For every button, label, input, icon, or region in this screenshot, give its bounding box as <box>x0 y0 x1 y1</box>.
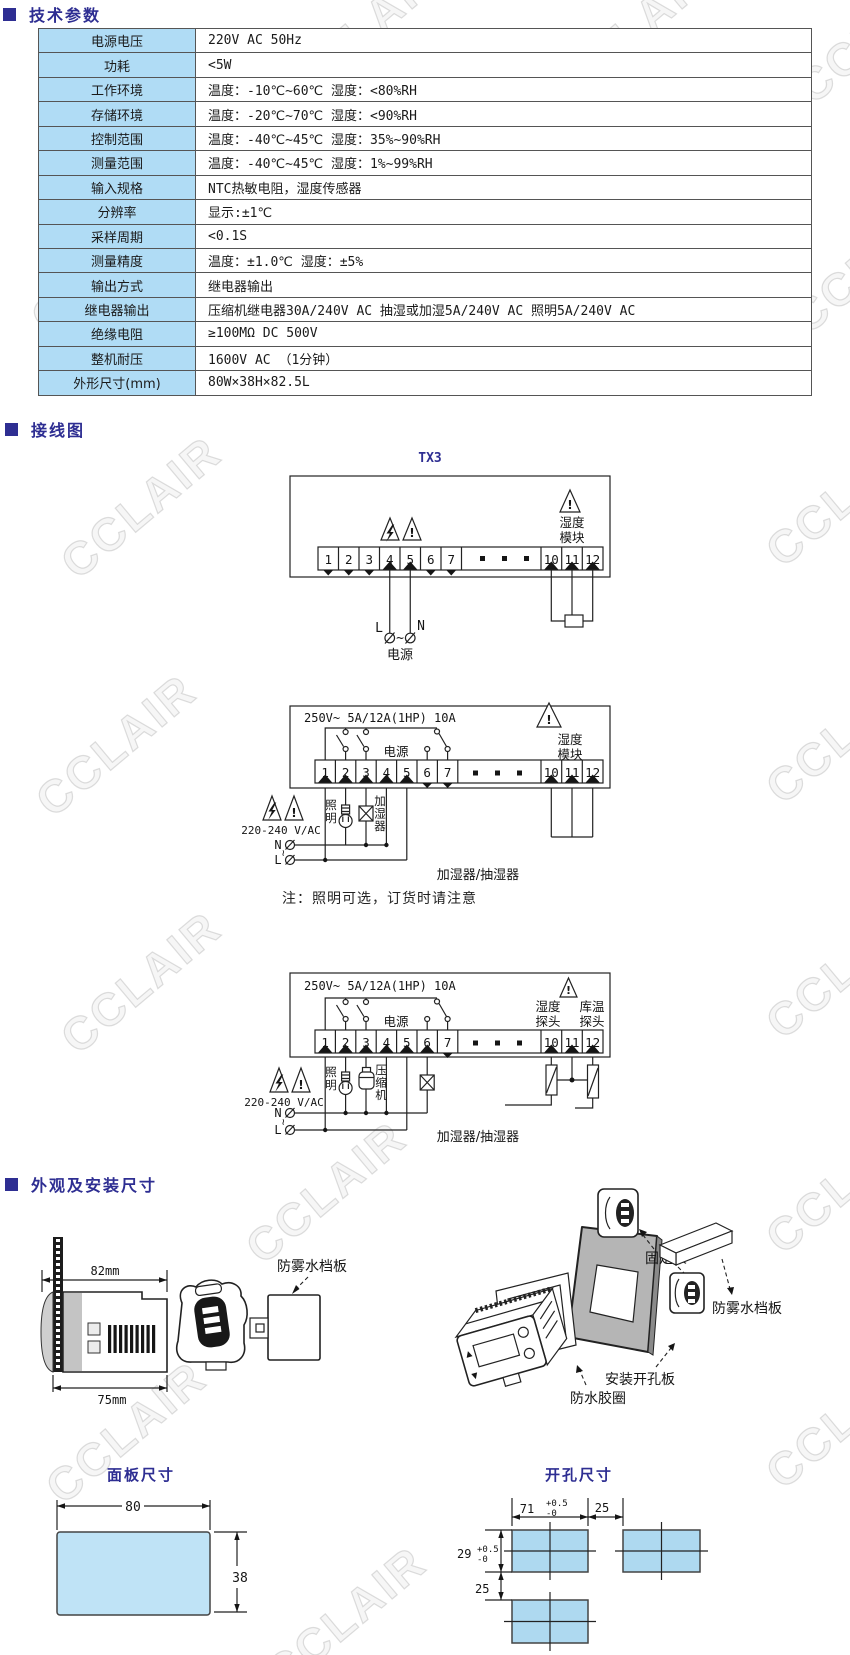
spec-label: 整机耐压 <box>39 347 196 370</box>
order-note: 注：照明可选，订货时请注意 <box>282 888 477 908</box>
humidifier-label: 器 <box>374 819 386 833</box>
compressor-label: 机 <box>375 1088 387 1102</box>
warning-icon: ! <box>403 518 421 540</box>
relay-rating: 250V~ 5A/12A(1HP) 10A <box>304 979 456 993</box>
humidity-module-box <box>565 615 583 627</box>
vent-grille <box>108 1325 155 1353</box>
dimension-75mm: 75mm <box>53 1375 167 1407</box>
table-row: 功耗<5W <box>39 53 811 77</box>
callout-arrowhead <box>576 1365 583 1373</box>
terminal-number: 6 <box>423 765 431 780</box>
spec-label: 绝缘电阻 <box>39 322 196 345</box>
fixing-bracket-side <box>670 1273 704 1313</box>
tolerance-minus: -0 <box>477 1555 488 1565</box>
terminal-number: 6 <box>427 552 435 567</box>
spec-value: 1600V AC （1分钟） <box>196 347 811 370</box>
table-row: 继电器输出压缩机继电器30A/240V AC 抽湿或加湿5A/240V AC 照… <box>39 298 811 322</box>
spec-table: 电源电压220V AC 50Hz 功耗<5W 工作环境温度：-10℃~60℃ 湿… <box>38 28 812 396</box>
table-row: 存储环境温度：-20℃~70℃ 湿度：<90%RH <box>39 102 811 126</box>
ac-tilde: ~ <box>396 631 404 646</box>
watermark: CCLAIR <box>755 885 850 1050</box>
power-label: 电源 <box>383 744 409 759</box>
spec-value: 继电器输出 <box>196 273 811 296</box>
probe-label: 探头 <box>579 1014 604 1029</box>
spec-value: 显示:±1℃ <box>196 200 811 223</box>
cutout-size-title: 开孔尺寸 <box>545 1464 613 1485</box>
table-row: 整机耐压1600V AC （1分钟） <box>39 347 811 371</box>
watermark: CCLAIR <box>755 413 850 578</box>
section-header-tech: 技术参数 <box>3 2 101 26</box>
spec-label: 电源电压 <box>39 29 196 52</box>
spec-label: 测量范围 <box>39 151 196 174</box>
terminal-number: 7 <box>444 1035 452 1050</box>
warning-mark: ! <box>546 713 551 727</box>
table-row: 采样周期<0.1S <box>39 225 811 249</box>
controller-side-view <box>41 1237 167 1372</box>
spec-label: 功耗 <box>39 53 196 76</box>
section-bullet <box>5 423 18 436</box>
humidity-probe-icon <box>546 1065 557 1095</box>
dim-label: 82mm <box>91 1264 120 1278</box>
section-bullet <box>5 1178 18 1191</box>
spec-label: 测量精度 <box>39 249 196 272</box>
cutout-panel <box>568 1227 662 1355</box>
spec-label: 分辨率 <box>39 200 196 223</box>
watermark: CCLAIR <box>755 650 850 815</box>
spec-value: <5W <box>196 53 811 76</box>
table-row: 测量范围温度：-40℃~45℃ 湿度：1%~99%RH <box>39 151 811 175</box>
section-bullet <box>3 8 16 21</box>
spec-label: 外形尺寸(mm) <box>39 371 196 394</box>
terminal-strip: 1 2 3 4 5 6 7 10 11 12 <box>318 547 603 576</box>
spec-value: 80W×38H×82.5L <box>196 371 811 394</box>
dimension-width: 80 <box>57 1500 210 1530</box>
module-label: 模块 <box>559 530 585 545</box>
lighting-label: 照 <box>325 1065 337 1079</box>
line-label: L <box>375 621 383 636</box>
power-label: 电源 <box>387 648 413 663</box>
lighting-label: 明 <box>325 1078 337 1092</box>
spec-label: 采样周期 <box>39 225 196 248</box>
compressor-icon <box>359 1068 374 1090</box>
terminal-strip: 1 2 3 4 5 6 7 10 11 12 <box>315 1030 603 1058</box>
table-row: 分辨率显示:±1℃ <box>39 200 811 224</box>
wiring-diagram-probes: 250V~ 5A/12A(1HP) 10A 电源 ! 湿度 探头 库温 探头 1… <box>230 965 650 1160</box>
spec-value: 温度：±1.0℃ 湿度：±5% <box>196 249 811 272</box>
spec-value: NTC热敏电阻，湿度传感器 <box>196 176 811 199</box>
lamp-icon <box>339 1072 352 1095</box>
terminal-number: 1 <box>324 552 332 567</box>
callout-arrow <box>722 1259 730 1289</box>
terminal-number: 7 <box>444 765 452 780</box>
dim-label: 38 <box>232 1571 248 1586</box>
warning-icon: ! <box>560 490 580 512</box>
warning-mark: ! <box>567 498 572 512</box>
spec-value: ≥100MΩ DC 500V <box>196 322 811 345</box>
terminal-number: 3 <box>365 552 373 567</box>
dim-label: 75mm <box>98 1393 127 1407</box>
warning-icon: ! <box>285 796 303 820</box>
dim-label: 25 <box>475 1582 489 1596</box>
dimension-cutout-height: 29 +0.5 -0 25 <box>457 1530 512 1600</box>
power-label: 电源 <box>383 1014 409 1029</box>
spec-value: 温度：-20℃~70℃ 湿度：<90%RH <box>196 102 811 125</box>
spec-value: 温度：-40℃~45℃ 湿度：1%~99%RH <box>196 151 811 174</box>
mains-label: 220-240 V/AC <box>244 1096 323 1109</box>
table-row: 输入规格NTC热敏电阻，湿度传感器 <box>39 176 811 200</box>
install-drawings: 82mm 75mm <box>20 1185 840 1420</box>
lighting-label: 照 <box>325 798 337 812</box>
panel-size-drawing: 80 38 <box>40 1490 260 1630</box>
hazard-voltage-icon <box>270 1068 288 1092</box>
mains-terminals: N L ~ <box>274 1106 294 1137</box>
warning-mark: ! <box>566 984 571 997</box>
baffle-strip-3d <box>660 1223 732 1265</box>
table-row: 测量精度温度：±1.0℃ 湿度：±5% <box>39 249 811 273</box>
section-title: 技术参数 <box>29 2 101 26</box>
probe-label: 湿度 <box>535 999 561 1014</box>
callout-arrowhead <box>292 1285 300 1294</box>
temp-probe-icon <box>588 1065 599 1098</box>
cutout-rect <box>615 1522 708 1580</box>
cutout-rect <box>504 1522 596 1580</box>
panel-face <box>57 1532 210 1615</box>
warning-mark: ! <box>291 806 296 820</box>
warning-mark: ! <box>298 1078 303 1092</box>
hazard-voltage-icon <box>381 518 399 542</box>
spec-value: <0.1S <box>196 225 811 248</box>
table-row: 控制范围温度：-40℃~45℃ 湿度：35%~90%RH <box>39 127 811 151</box>
panel-size-title: 面板尺寸 <box>107 1464 175 1485</box>
table-row: 电源电压220V AC 50Hz <box>39 29 811 53</box>
tolerance-plus: +0.5 <box>477 1545 499 1555</box>
table-row: 外形尺寸(mm)80W×38H×82.5L <box>39 371 811 394</box>
table-row: 输出方式继电器输出 <box>39 273 811 297</box>
watermark: CCLAIR <box>50 425 232 590</box>
baffle-label: 防雾水档板 <box>277 1259 347 1275</box>
ac-tilde: ~ <box>277 850 290 857</box>
warning-icon: ! <box>292 1068 310 1092</box>
watermark: CCLAIR <box>255 1535 437 1655</box>
hazard-voltage-icon <box>263 796 281 820</box>
dim-label: 80 <box>125 1500 141 1515</box>
dim-label: 29 <box>457 1547 471 1561</box>
warning-icon: ! <box>560 978 577 997</box>
gasket-label: 防水胶圈 <box>570 1390 626 1407</box>
cutout-rect <box>504 1592 596 1651</box>
probe-label: 探头 <box>535 1014 560 1029</box>
section-header-wiring: 接线图 <box>5 417 85 441</box>
controller-rear-view <box>177 1280 247 1370</box>
table-row: 绝缘电阻≥100MΩ DC 500V <box>39 322 811 346</box>
lamp-icon <box>339 805 352 828</box>
watermark: CCLAIR <box>25 663 207 828</box>
probe-label: 库温 <box>579 999 605 1014</box>
spec-label: 继电器输出 <box>39 298 196 321</box>
watermark: CCLAIR <box>50 900 232 1065</box>
controller-3d: ▲ ▼ <box>450 1289 574 1396</box>
spec-label: 输出方式 <box>39 273 196 296</box>
spec-label: 控制范围 <box>39 127 196 150</box>
dim-label: 71 <box>520 1502 534 1516</box>
terminal-number: 2 <box>345 552 353 567</box>
spec-value: 压缩机继电器30A/240V AC 抽湿或加湿5A/240V AC 照明5A/2… <box>196 298 811 321</box>
dimension-cutout-width: 71 +0.5 -0 25 <box>512 1498 623 1526</box>
terminal-number: 7 <box>447 552 455 567</box>
module-label: 湿度 <box>557 732 583 747</box>
ac-tilde: ~ <box>277 1119 290 1126</box>
baffle-label: 防雾水档板 <box>712 1301 782 1317</box>
fixing-bracket-top <box>598 1189 638 1237</box>
neutral-label: N <box>417 619 425 634</box>
warning-mark: ! <box>409 526 414 540</box>
module-label: 湿度 <box>559 515 585 530</box>
spec-value: 温度：-10℃~60℃ 湿度：<80%RH <box>196 78 811 101</box>
baffle-plate <box>250 1295 320 1360</box>
tolerance-plus: +0.5 <box>546 1499 568 1509</box>
panel-label: 安装开孔板 <box>605 1372 675 1388</box>
load-wiring <box>295 788 593 862</box>
wiring-diagram-tx3: TX3 1 2 3 4 5 6 7 10 11 12 <box>250 448 650 666</box>
load-label: 加湿器/抽湿器 <box>437 1130 519 1145</box>
humidifier-icon <box>359 806 373 821</box>
dimension-height: 38 <box>214 1532 248 1612</box>
cutout-size-drawing: 71 +0.5 -0 25 29 +0.5 -0 25 <box>440 1490 740 1655</box>
spec-label: 工作环境 <box>39 78 196 101</box>
spec-value: 220V AC 50Hz <box>196 29 811 52</box>
callout-arrow <box>656 1348 671 1367</box>
lighting-label: 明 <box>325 811 337 825</box>
section-title: 接线图 <box>31 417 85 441</box>
mains-label: 220-240 V/AC <box>241 824 320 837</box>
diagram-title: TX3 <box>418 451 441 466</box>
table-row: 工作环境温度：-10℃~60℃ 湿度：<80%RH <box>39 78 811 102</box>
dehumidifier-icon <box>420 1075 434 1090</box>
load-label: 加湿器/抽湿器 <box>437 868 519 883</box>
dim-label: 25 <box>595 1501 609 1515</box>
mains-terminals: N L ~ <box>274 838 294 867</box>
callout-arrow <box>580 1371 586 1385</box>
terminal-strip: 1 2 3 4 5 6 7 10 11 12 <box>315 760 603 788</box>
wiring-diagram-humidifier: 250V~ 5A/12A(1HP) 10A 电源 ! 湿度 模块 1 2 3 4… <box>230 698 650 888</box>
tolerance-minus: -0 <box>546 1509 557 1519</box>
spec-label: 输入规格 <box>39 176 196 199</box>
datasheet-page: CCLAIR CCLAIR CCLAIR CCLAIR CCLAIR CCLAI… <box>0 0 850 1655</box>
spec-label: 存储环境 <box>39 102 196 125</box>
relay-rating: 250V~ 5A/12A(1HP) 10A <box>304 711 456 725</box>
spec-value: 温度：-40℃~45℃ 湿度：35%~90%RH <box>196 127 811 150</box>
callout-arrowhead <box>727 1287 734 1295</box>
